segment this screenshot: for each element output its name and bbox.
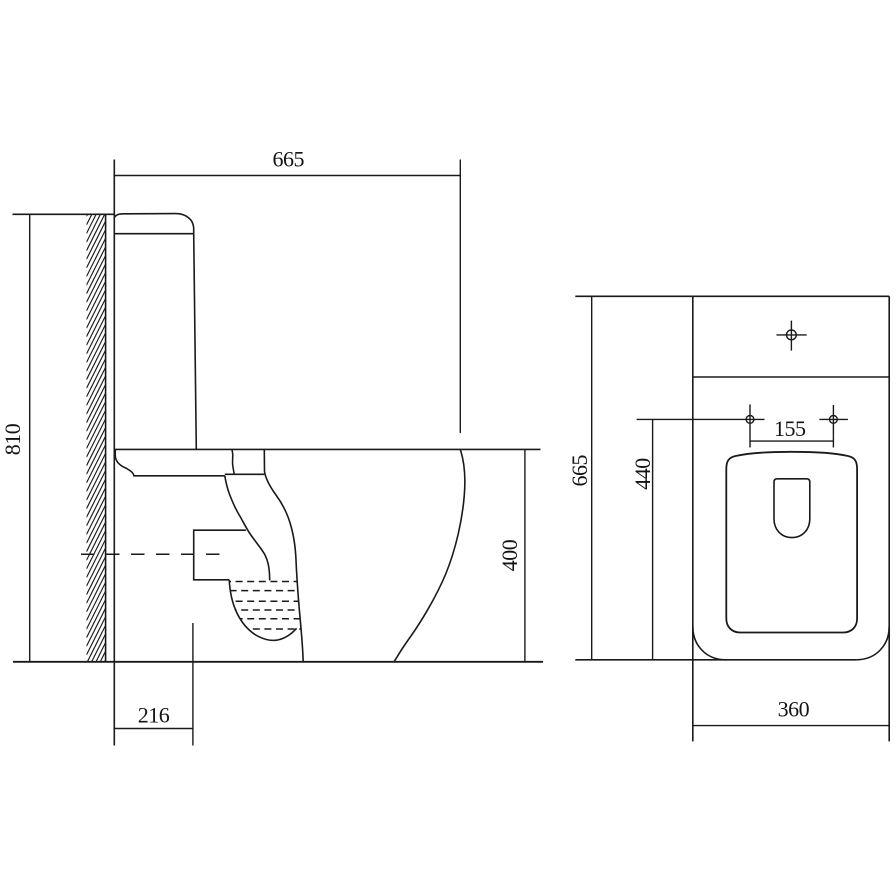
svg-text:665: 665 <box>567 454 592 486</box>
svg-text:400: 400 <box>497 539 522 571</box>
svg-text:360: 360 <box>778 697 810 722</box>
svg-text:665: 665 <box>272 147 304 172</box>
svg-text:440: 440 <box>630 458 655 490</box>
svg-text:155: 155 <box>774 416 806 441</box>
svg-text:810: 810 <box>0 423 25 455</box>
svg-text:216: 216 <box>138 703 170 728</box>
